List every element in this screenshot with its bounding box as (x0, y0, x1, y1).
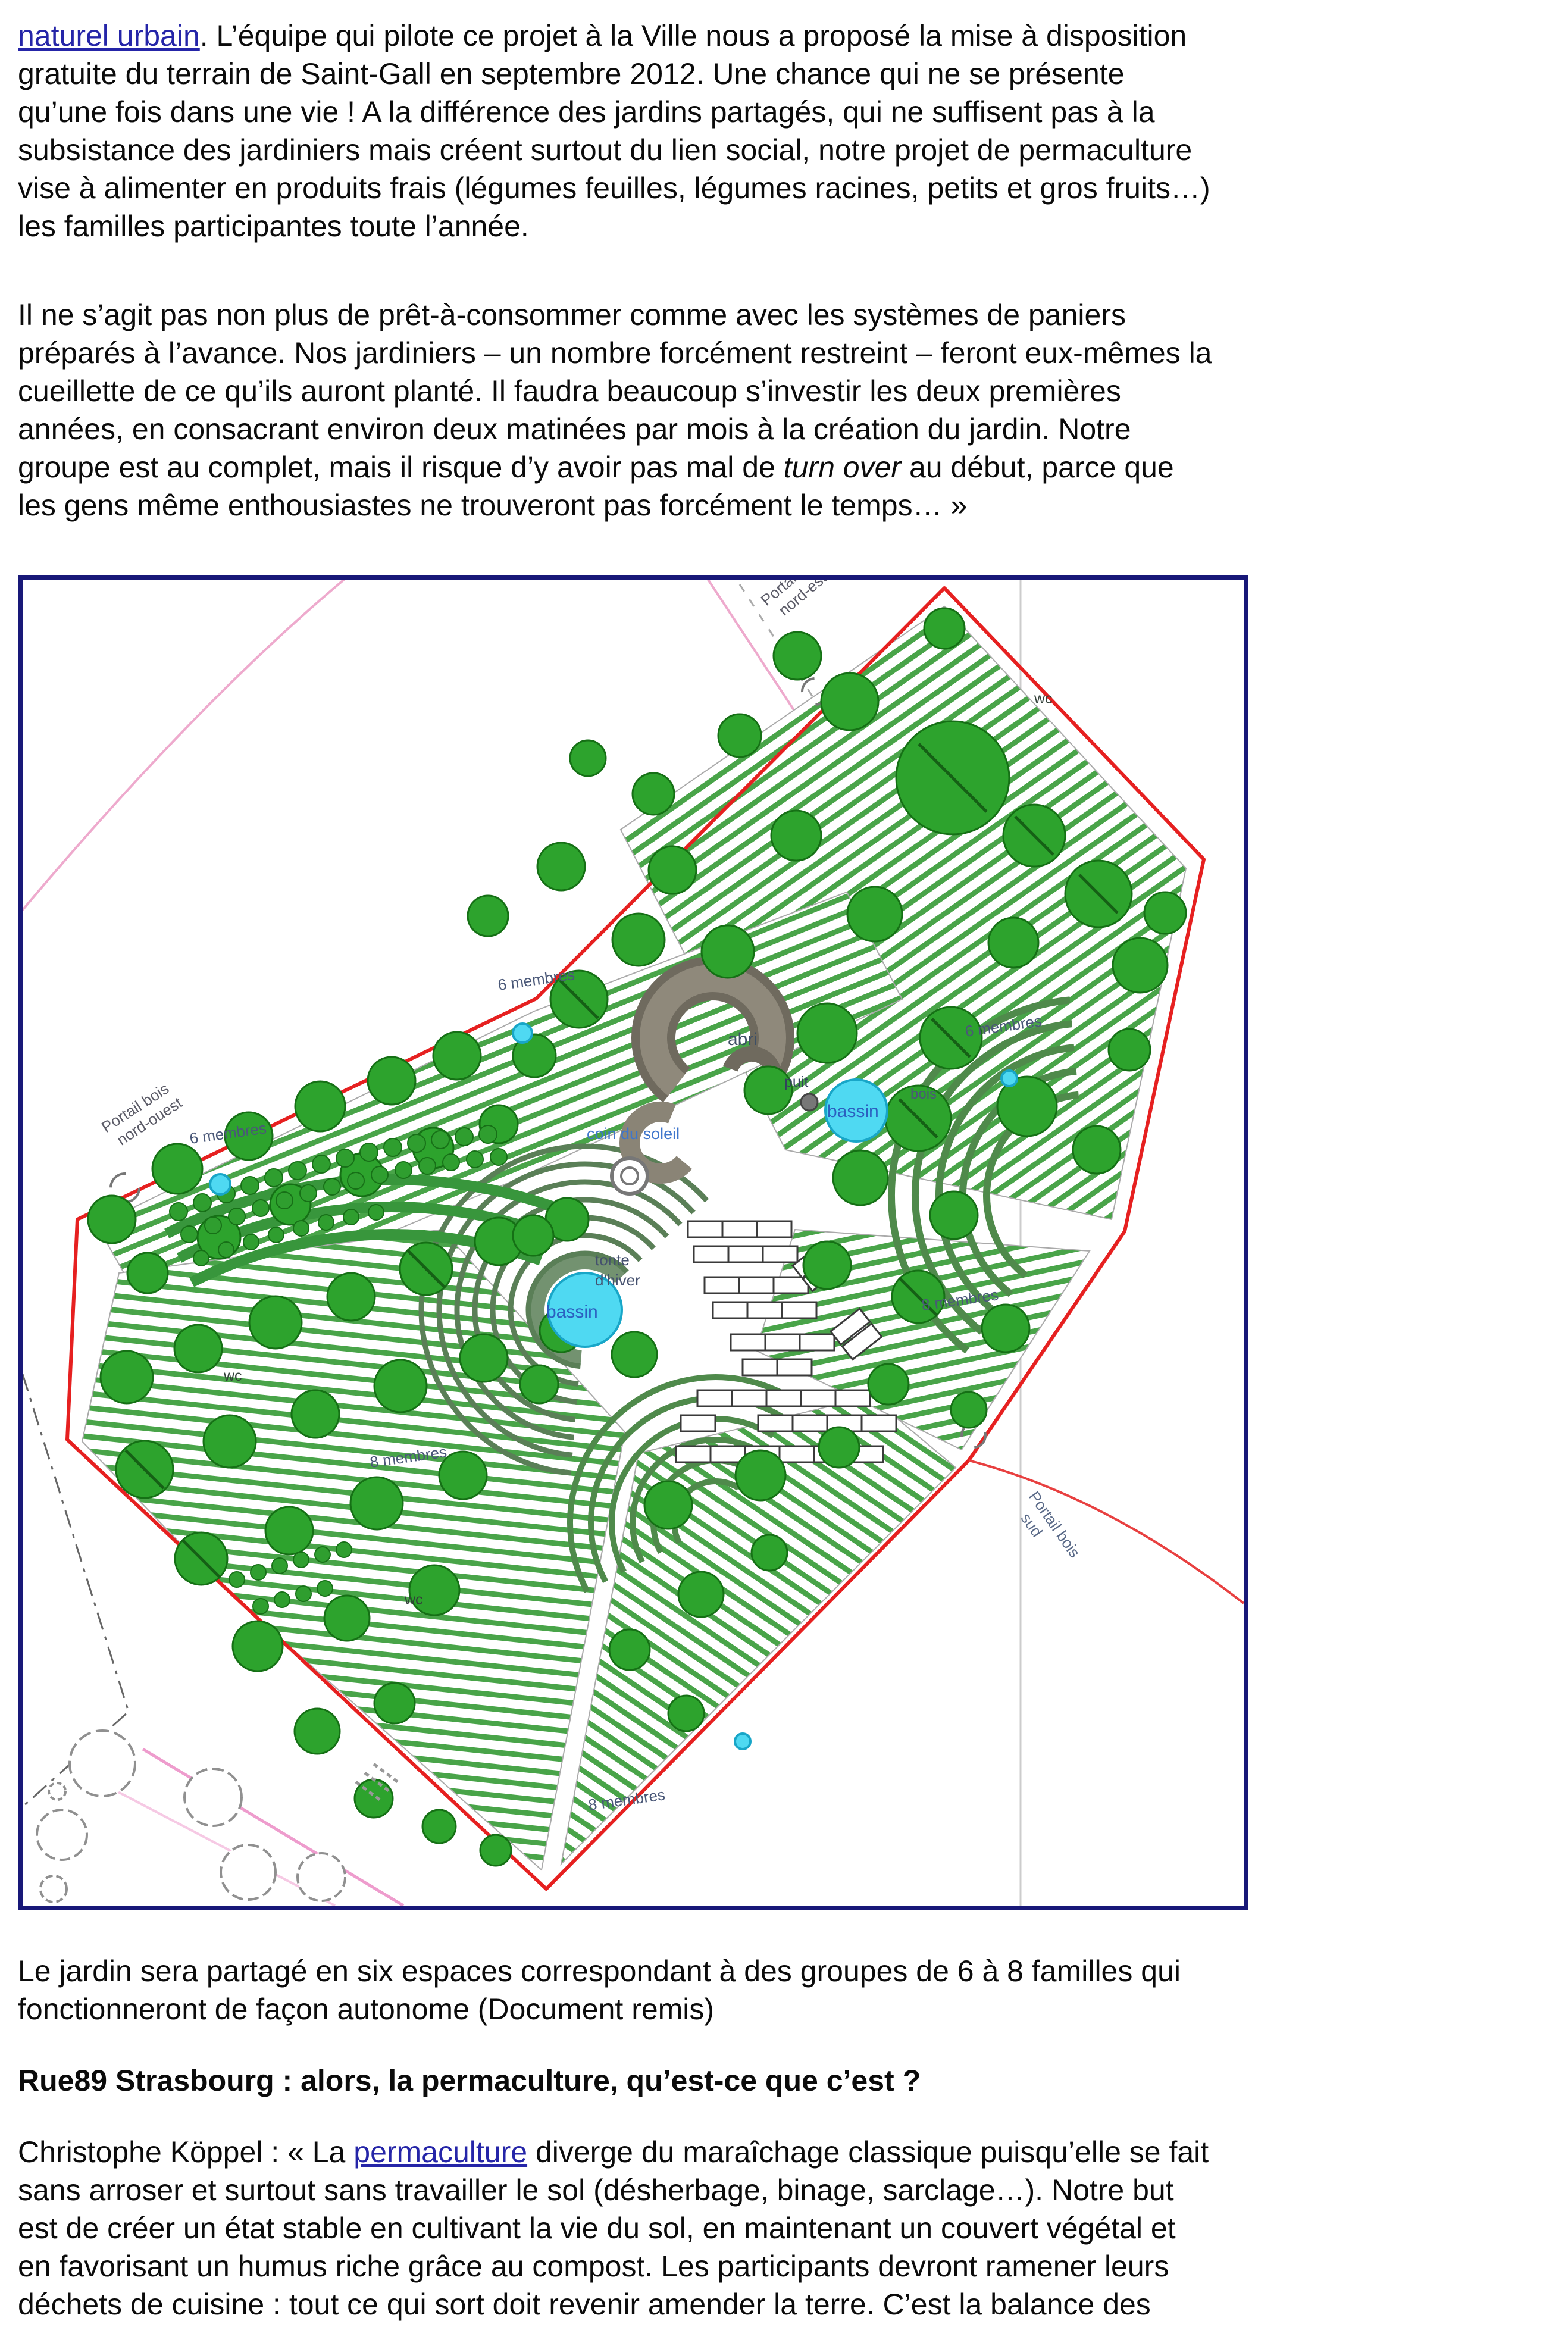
link-naturel-urbain[interactable]: naturel urbain (18, 19, 200, 52)
paragraph-answer: Christophe Köppel : « La permaculture di… (18, 2133, 1550, 2323)
text-run: en favorisant un humus riche grâce au co… (18, 2250, 1169, 2283)
text-run: Il ne s’agit pas non plus de prêt-à-cons… (18, 298, 1126, 331)
label-bassin-centre: bassin (546, 1302, 598, 1322)
text-run: les familles participantes toute l’année… (18, 209, 529, 243)
link-permaculture[interactable]: permaculture (353, 2135, 527, 2169)
text-run: sans arroser et surtout sans travailler … (18, 2173, 1174, 2207)
figure-caption: Le jardin sera partagé en six espaces co… (18, 1952, 1550, 2028)
svg-text:d'hiver: d'hiver (595, 1271, 640, 1289)
text-run: subsistance des jardiniers mais créent s… (18, 133, 1192, 167)
existing-trees (37, 1731, 345, 1902)
text-run: vise à alimenter en produits frais (légu… (18, 171, 1210, 205)
italic-text: turn over (784, 451, 901, 484)
text-run: Christophe Köppel : « La (18, 2135, 353, 2169)
text-run: les gens même enthousiastes ne trouveron… (18, 489, 967, 522)
text-run: fonctionneront de façon autonome (Docume… (18, 1992, 714, 2026)
svg-text:wc: wc (404, 1591, 423, 1608)
label-bassin-nord: bassin (827, 1102, 879, 1121)
paragraph-quote: Il ne s’agit pas non plus de prêt-à-cons… (18, 296, 1550, 524)
label-bois: bois (910, 1086, 937, 1102)
text-run: qu’une fois dans une vie ! A la différen… (18, 95, 1155, 129)
svg-text:wc: wc (223, 1368, 242, 1384)
text-run: déchets de cuisine : tout ce qui sort do… (18, 2288, 1151, 2321)
text-run: gratuite du terrain de Saint-Gall en sep… (18, 57, 1125, 90)
text-run: est de créer un état stable en cultivant… (18, 2212, 1176, 2245)
text-run: années, en consacrant environ deux matin… (18, 412, 1131, 446)
question-heading: Rue89 Strasbourg : alors, la permacultur… (18, 2062, 1550, 2100)
well-symbol (801, 1094, 818, 1111)
text-run: cueillette de ce qu’ils auront planté. I… (18, 374, 1121, 408)
garden-plan-figure: Portail bois nord-ouest Portail bois nor… (18, 575, 1248, 1910)
text-run: au début, parce que (901, 451, 1174, 484)
article: naturel urbain. L’équipe qui pilote ce p… (0, 0, 1568, 2323)
label-coin-du-soleil: coin du soleil (587, 1125, 680, 1143)
text-run: . L’équipe qui pilote ce projet à la Vil… (200, 19, 1187, 52)
text-run: groupe est au complet, mais il risque d’… (18, 451, 784, 484)
garden-plan-svg: Portail bois nord-ouest Portail bois nor… (23, 580, 1244, 1906)
paragraph-intro: naturel urbain. L’équipe qui pilote ce p… (18, 17, 1550, 245)
label-puit: puit (784, 1074, 808, 1090)
text-run: diverge du maraîchage classique puisqu’e… (527, 2135, 1209, 2169)
label-wc: wc (1034, 690, 1053, 707)
text-run: Le jardin sera partagé en six espaces co… (18, 1954, 1181, 1988)
label-abri: abri (728, 1030, 758, 1049)
label-tonte-hiver: tonte (595, 1251, 630, 1269)
text-run: préparés à l’avance. Nos jardiniers – un… (18, 336, 1212, 370)
